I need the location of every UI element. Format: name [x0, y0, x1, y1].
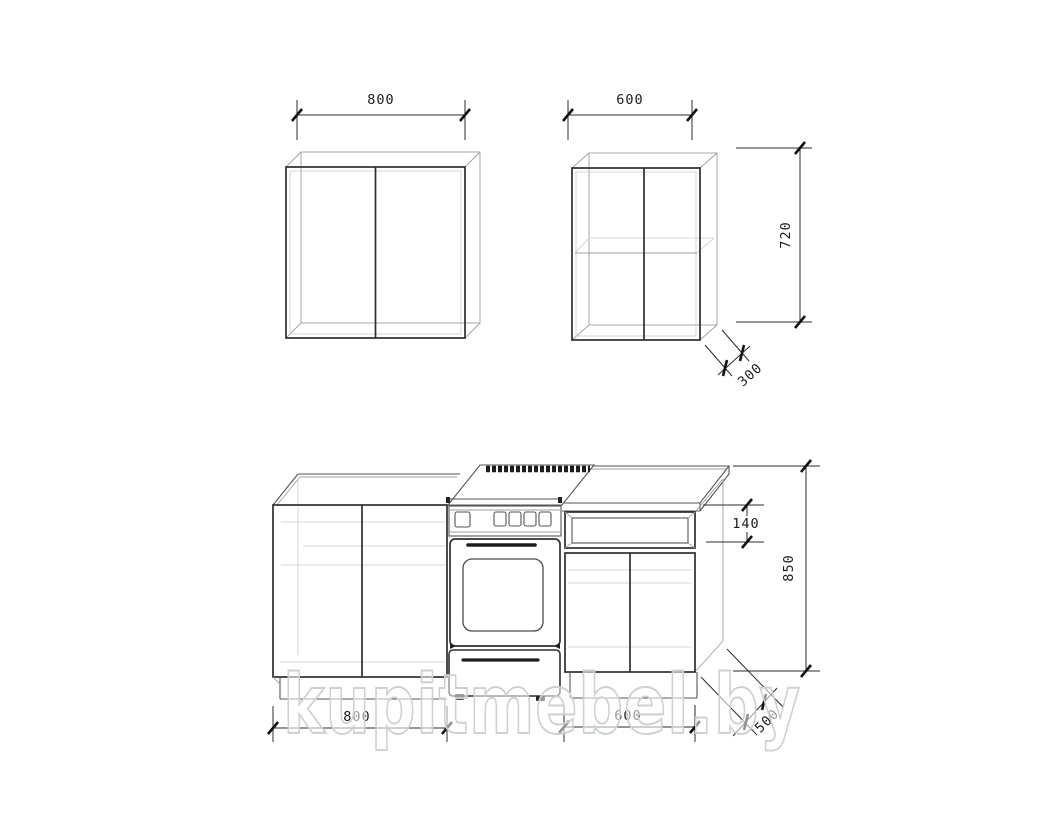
dimension-wall-height: 720 — [736, 142, 812, 328]
drawing-canvas: 800 600 720 300 140 — [0, 0, 1056, 816]
dimension-wall-depth: 300 — [705, 330, 766, 390]
kitchen-drawing: 800 600 720 300 140 — [0, 0, 1056, 816]
dimension-wall-right-width: 600 — [563, 92, 697, 140]
dim-label-800-wall: 800 — [367, 92, 394, 108]
dim-label-850: 850 — [781, 554, 797, 581]
oven-door — [450, 539, 560, 646]
watermark-text: kupitmebel.by — [283, 658, 801, 753]
dimension-base-height: 850 — [733, 460, 820, 677]
dim-label-300: 300 — [735, 360, 766, 390]
dim-label-600-wall: 600 — [616, 92, 643, 108]
dimension-wall-left-width: 800 — [292, 92, 470, 140]
wall-cabinet-800 — [286, 152, 480, 338]
dimension-apron-height: 140 — [703, 499, 767, 548]
dim-label-720: 720 — [778, 221, 794, 248]
dim-label-140: 140 — [732, 516, 759, 532]
wall-cabinet-600 — [572, 153, 717, 340]
